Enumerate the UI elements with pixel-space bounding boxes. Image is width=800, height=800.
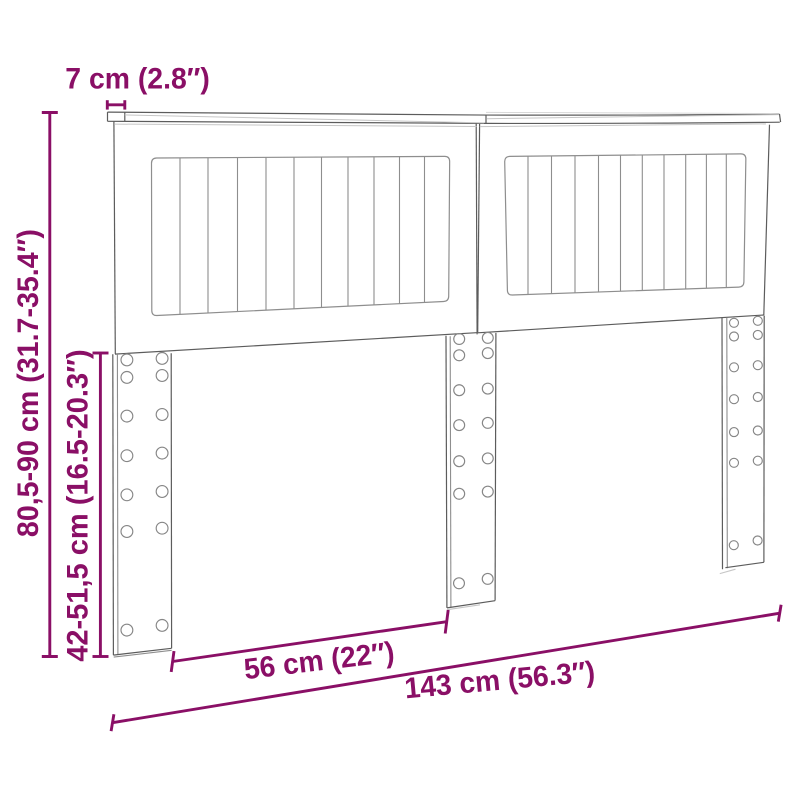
svg-text:7 cm (2.8″): 7 cm (2.8″): [65, 62, 210, 95]
svg-text:42-51,5 cm (16.5-20.3″): 42-51,5 cm (16.5-20.3″): [61, 349, 94, 662]
svg-text:80,5-90 cm (31.7-35.4″): 80,5-90 cm (31.7-35.4″): [12, 229, 45, 537]
